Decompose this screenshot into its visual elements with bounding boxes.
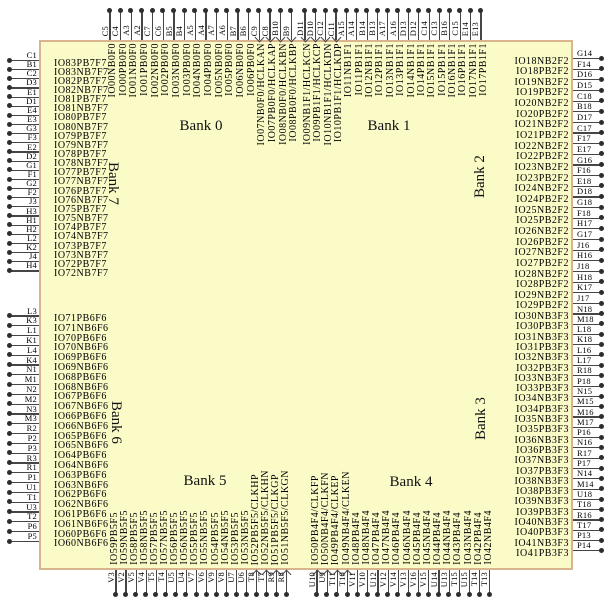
io-label: IO19PB2F2 [516, 88, 569, 98]
pin-number: N1 [26, 365, 37, 374]
pin-number: D18 [577, 187, 592, 196]
pin-dot [599, 130, 604, 135]
pin-dot [333, 8, 338, 13]
pin-dot [314, 592, 319, 597]
pin-dot [437, 8, 442, 13]
pin-dot [143, 592, 148, 597]
pin-number: V7 [187, 572, 196, 583]
pin-dot [7, 259, 12, 264]
pin-dot [234, 592, 239, 597]
pin-dot [194, 592, 199, 597]
pin-dot [599, 507, 604, 512]
pin-dot [150, 8, 155, 13]
pin-dot [599, 120, 604, 125]
pin-dot [599, 435, 604, 440]
pin-dot [599, 301, 604, 306]
pin-number: V9 [207, 572, 216, 583]
pin-dot [599, 352, 604, 357]
pin-number: R16 [577, 511, 592, 520]
pin-dot [324, 592, 329, 597]
pin-number: T4 [157, 572, 166, 582]
pin-dot [599, 205, 604, 210]
io-label: IO43PB4F4 [452, 512, 463, 565]
pin-dot [599, 183, 604, 188]
io-label: IO54NB5F5 [220, 510, 231, 565]
pin-number: U6 [237, 572, 246, 583]
pin-number: M17 [577, 418, 594, 427]
pin-dot [7, 113, 12, 118]
pin-dot [599, 194, 604, 199]
io-label: IO14NB1F1 [406, 43, 417, 98]
io-label: IO25PB2F2 [516, 216, 569, 226]
pin-number: B16 [440, 21, 449, 36]
io-label: IO54PB5F5 [210, 512, 221, 565]
pin-number: N14 [577, 469, 592, 478]
pin-dot [107, 8, 112, 13]
pin-dot [203, 8, 208, 13]
bank3-label: Bank 3 [473, 388, 490, 450]
pin-number: T17 [577, 521, 591, 530]
pin-dot [599, 455, 604, 460]
pin-dot [436, 592, 441, 597]
io-label: IO19NB2F2 [514, 78, 569, 88]
pin-number: N18 [577, 305, 592, 314]
pin-number: H16 [577, 251, 592, 260]
pin-dot [7, 401, 12, 406]
io-label: IO08PB0F0/HCLKBP [288, 43, 299, 142]
pin-dot [7, 140, 12, 145]
pin-number: K17 [577, 283, 592, 292]
pin-number: A3 [122, 25, 131, 36]
pin-dot [278, 8, 283, 13]
pin-dot [345, 592, 350, 597]
io-label: IO18NB2F2 [514, 57, 569, 67]
pin-number: T2 [27, 512, 37, 521]
pin-dot [599, 226, 604, 231]
pin-number: V12 [379, 572, 388, 587]
pin-dot [7, 450, 12, 455]
pin-dot [599, 77, 604, 82]
io-label: IO26PB2F2 [516, 238, 569, 248]
io-label: IO03NB0F0 [171, 43, 182, 98]
io-label: IO00PB0F0 [118, 43, 129, 96]
pin-dot [173, 592, 178, 597]
pin-dot [478, 8, 483, 13]
pin-number: P1 [28, 473, 37, 482]
pin-number: H18 [577, 273, 592, 282]
pin-dot [456, 592, 461, 597]
pin-dot [163, 592, 168, 597]
pin-dot [365, 592, 370, 597]
io-label: IO26NB2F2 [514, 227, 569, 237]
io-label: IO22NB2F2 [514, 142, 569, 152]
pin-number: C7 [143, 26, 152, 36]
pin-dot [416, 592, 421, 597]
pin-number: P16 [577, 428, 591, 437]
pin-dot [123, 592, 128, 597]
pin-dot [7, 241, 12, 246]
pin-number: L16 [577, 346, 591, 355]
pin-number: N3 [26, 405, 37, 414]
pin-dot [224, 592, 229, 597]
io-label: IO30PB3F3 [516, 322, 569, 332]
pin-dot [153, 592, 158, 597]
pin-number: P5 [28, 532, 37, 541]
pin-dot [457, 8, 462, 13]
io-label: IO28PB2F2 [516, 280, 569, 290]
pin-dot [113, 592, 118, 597]
pin-dot [7, 343, 12, 348]
pin-number: U7 [227, 572, 236, 583]
pin-number: D12 [409, 21, 418, 36]
pinout-diagram: Bank 0 Bank 1 Bank 2 Bank 3 Bank 4 Bank … [0, 0, 610, 610]
pin-number: M15 [577, 397, 594, 406]
pin-dot [599, 258, 604, 263]
pin-dot [323, 8, 328, 13]
pin-dot [133, 592, 138, 597]
pin-number: T13 [480, 572, 489, 586]
pin-number: A14 [347, 21, 356, 36]
pin-number: L17 [577, 356, 591, 365]
pin-dot [7, 490, 12, 495]
pin-number: P6 [28, 522, 37, 531]
pin-dot [7, 213, 12, 218]
pin-number: A5 [186, 25, 195, 36]
pin-number: H17 [577, 219, 592, 228]
pin-dot [7, 167, 12, 172]
pin-number: K1 [26, 336, 37, 345]
pin-dot [395, 8, 400, 13]
pin-number: T18 [577, 500, 591, 509]
io-label: IO00NB0F0 [107, 43, 118, 98]
pin-dot [7, 333, 12, 338]
io-label: IO72NB7F7 [54, 269, 109, 279]
pin-dot [7, 250, 12, 255]
pin-dot [7, 411, 12, 416]
pin-dot [7, 186, 12, 191]
io-label: IO13PB1F1 [395, 43, 406, 96]
pin-dot [302, 8, 307, 13]
pin-dot [7, 222, 12, 227]
io-label: IO27PB2F2 [516, 259, 569, 269]
pin-number: E13 [471, 22, 480, 36]
io-label: IO16PB1F1 [457, 43, 468, 96]
pin-dot [214, 8, 219, 13]
pin-number: R18 [577, 366, 592, 375]
pin-wire [480, 10, 481, 40]
io-label: IO24PB2F2 [516, 195, 569, 205]
bank6-label: Bank 6 [107, 391, 124, 453]
pin-number: F14 [577, 60, 591, 69]
pin-number: V16 [409, 572, 418, 587]
io-label: IO28NB2F2 [514, 270, 569, 280]
pin-dot [599, 414, 604, 419]
pin-dot [288, 8, 293, 13]
pin-number: C6 [154, 26, 163, 36]
pin-dot [7, 392, 12, 397]
pin-number: B7 [229, 26, 238, 36]
pin-number: G14 [577, 49, 592, 58]
pin-dot [7, 231, 12, 236]
pin-number: B4 [175, 26, 184, 36]
pin-dot [406, 592, 411, 597]
pin-dot [246, 8, 251, 13]
pin-number: T14 [470, 572, 479, 586]
pin-number: V8 [217, 572, 226, 583]
pin-number: L4 [27, 346, 37, 355]
pin-number: P3 [28, 444, 37, 453]
pin-dot [599, 109, 604, 114]
pin-dot [7, 372, 12, 377]
pin-dot [312, 8, 317, 13]
pin-number: U3 [26, 503, 37, 512]
pin-number: V2 [117, 572, 126, 583]
pin-dot [599, 141, 604, 146]
pin-dot [599, 363, 604, 368]
io-label: IO55NB5F5 [199, 510, 210, 565]
pin-number: M3 [25, 414, 37, 423]
pin-dot [7, 85, 12, 90]
pin-number: P13 [577, 531, 591, 540]
pin-dot [354, 8, 359, 13]
pin-number: V3 [107, 572, 116, 583]
pin-dot [344, 8, 349, 13]
pin-dot [599, 424, 604, 429]
pin-dot [182, 8, 187, 13]
pin-dot [183, 592, 188, 597]
io-label: IO34NB3F3 [514, 394, 569, 404]
pin-dot [406, 8, 411, 13]
pin-dot [599, 66, 604, 71]
pin-dot [274, 592, 279, 597]
io-label: IO05PB0F0 [224, 43, 235, 96]
pin-dot [599, 269, 604, 274]
bank5-label: Bank 5 [165, 473, 245, 490]
pin-dot [599, 237, 604, 242]
bank1-label: Bank 1 [349, 118, 429, 135]
pin-number: F17 [577, 134, 591, 143]
io-label: IO15NB1F1 [426, 43, 437, 98]
pin-number: U1 [26, 483, 37, 492]
pin-number: G16 [577, 156, 592, 165]
pin-dot [7, 539, 12, 544]
pin-number: U13 [440, 572, 449, 587]
pin-dot [599, 279, 604, 284]
io-label: IO49NB4F4/CLKEN [341, 471, 352, 565]
pin-dot [599, 548, 604, 553]
bank0-label: Bank 0 [161, 118, 241, 135]
pin-number: G18 [577, 198, 592, 207]
pin-number: V11 [348, 572, 357, 587]
pin-dot [7, 103, 12, 108]
pin-dot [7, 470, 12, 475]
pin-dot [334, 592, 339, 597]
io-label: IO15PB1F1 [437, 43, 448, 96]
pin-number: U14 [430, 572, 439, 587]
pin-dot [599, 497, 604, 502]
pin-number: L18 [577, 325, 591, 334]
pin-number: V14 [389, 572, 398, 587]
pin-number: R1 [27, 463, 37, 472]
pin-number: E18 [577, 177, 591, 186]
pin-number: H4 [26, 261, 37, 270]
pin-dot [7, 76, 12, 81]
io-label: IO42NB4F4 [483, 510, 494, 565]
pin-dot [446, 592, 451, 597]
pin-dot [235, 8, 240, 13]
pin-dot [7, 131, 12, 136]
pin-wire [489, 570, 490, 594]
pin-dot [7, 480, 12, 485]
pin-number: C17 [577, 124, 592, 133]
pin-number: T1 [27, 493, 37, 502]
pin-number: D16 [577, 70, 592, 79]
pin-dot [416, 8, 421, 13]
pin-wire [9, 541, 39, 542]
pin-dot [7, 268, 12, 273]
io-label: IO51NB5F5/CLKGN [280, 470, 291, 565]
io-label: IO09PB1F1/HCLKCP [312, 43, 323, 142]
pin-dot [599, 311, 604, 316]
pin-dot [171, 8, 176, 13]
pin-dot [599, 527, 604, 532]
pin-number: N16 [577, 438, 592, 447]
pin-dot [599, 373, 604, 378]
pin-dot [375, 592, 380, 597]
io-label: IO20PB2F2 [516, 110, 569, 120]
pin-dot [599, 247, 604, 252]
pin-number: D15 [577, 81, 592, 90]
pin-dot [7, 122, 12, 127]
io-label: IO17NB1F1 [468, 43, 479, 98]
io-label: IO60NB6F6 [54, 539, 109, 549]
pin-number: V4 [137, 572, 146, 583]
io-label: IO23NB2F2 [514, 163, 569, 173]
pin-number: A17 [378, 21, 387, 36]
pin-dot [7, 58, 12, 63]
pin-dot [128, 8, 133, 13]
io-label: IO04NB0F0 [192, 43, 203, 98]
pin-number: V5 [127, 572, 136, 583]
pin-dot [7, 421, 12, 426]
pin-dot [214, 592, 219, 597]
pin-dot [447, 8, 452, 13]
pin-number: C18 [577, 92, 592, 101]
pin-number: K3 [26, 316, 37, 325]
pin-number: B6 [239, 26, 248, 36]
pin-dot [7, 94, 12, 99]
pin-dot [599, 342, 604, 347]
pin-dot [599, 394, 604, 399]
pin-dot [7, 362, 12, 367]
pin-dot [599, 321, 604, 326]
io-label: IO22PB2F2 [516, 152, 569, 162]
pin-dot [599, 173, 604, 178]
io-label: IO21PB2F2 [516, 131, 569, 141]
pin-number: P2 [28, 434, 37, 443]
io-label: IO49PB4F4/CLKEP [330, 475, 341, 565]
io-label: IO37NB3F3 [514, 456, 569, 466]
io-label: IO46PB4F4 [391, 512, 402, 565]
pin-number: C15 [451, 21, 460, 36]
pin-dot [204, 592, 209, 597]
pin-dot [7, 195, 12, 200]
pin-number: F3 [28, 133, 37, 142]
pin-number: J17 [577, 294, 589, 303]
pin-number: A7 [207, 25, 216, 36]
pin-number: T5 [147, 572, 156, 582]
io-label: IO46NB4F4 [402, 510, 413, 565]
pin-dot [477, 592, 482, 597]
pin-number: B18 [577, 102, 592, 111]
pin-dot [599, 290, 604, 295]
pin-dot [7, 67, 12, 72]
pin-number: U4 [177, 572, 186, 583]
pin-dot [7, 204, 12, 209]
io-label: IO24NB2F2 [514, 184, 569, 194]
pin-number: E14 [461, 22, 470, 36]
pin-dot [599, 162, 604, 167]
io-label: IO06NB0F0 [235, 43, 246, 98]
pin-number: V15 [419, 572, 428, 587]
pin-number: P14 [577, 541, 591, 550]
pin-dot [244, 592, 249, 597]
pin-dot [599, 538, 604, 543]
pin-number: N2 [26, 385, 37, 394]
pin-number: B5 [165, 26, 174, 36]
io-label: IO20NB2F2 [514, 99, 569, 109]
pin-dot [599, 383, 604, 388]
pin-number: J18 [577, 262, 589, 271]
pin-dot [267, 8, 272, 13]
pin-number: L3 [27, 307, 37, 316]
pin-dot [7, 431, 12, 436]
pin-dot [395, 592, 400, 597]
io-label: IO23PB2F2 [516, 174, 569, 184]
io-label: IO43NB4F4 [463, 510, 474, 565]
pin-dot [599, 517, 604, 522]
pin-number: M14 [577, 480, 594, 489]
pin-number: M1 [25, 375, 37, 384]
pin-dot [7, 509, 12, 514]
pin-number: F16 [577, 166, 591, 175]
pin-dot [375, 8, 380, 13]
bank2-label: Bank 2 [472, 146, 489, 208]
pin-number: R17 [577, 449, 592, 458]
pin-number: B14 [358, 21, 367, 36]
pin-number: U5 [167, 572, 176, 583]
io-label: IO01NB0F0 [128, 43, 139, 98]
pin-dot [467, 592, 472, 597]
pin-dot [468, 8, 473, 13]
pin-number: P18 [577, 377, 591, 386]
pin-number: B13 [368, 21, 377, 36]
io-label: IO04PB0F0 [203, 43, 214, 96]
pin-number: R3 [27, 454, 37, 463]
io-label: IO53PB5F5 [230, 512, 241, 565]
pin-dot [599, 151, 604, 156]
pin-number: C13 [430, 21, 439, 36]
pin-number: V13 [399, 572, 408, 587]
pin-number: L1 [27, 326, 37, 335]
pin-number: U15 [460, 572, 469, 587]
io-label: IO11NB1F1 [343, 43, 354, 97]
io-label: IO32PB3F3 [516, 364, 569, 374]
pin-wire [9, 270, 39, 271]
pin-dot [7, 460, 12, 465]
pin-dot [599, 88, 604, 93]
pin-number: C5 [101, 26, 110, 36]
